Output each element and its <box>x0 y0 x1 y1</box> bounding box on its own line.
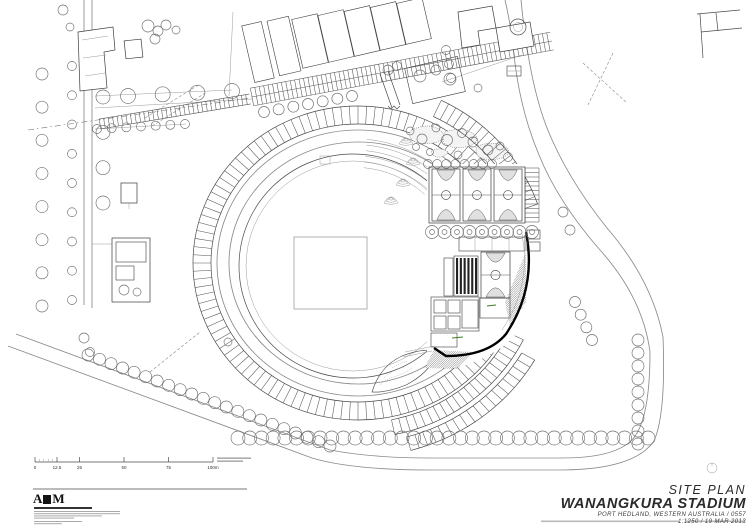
plot-dash-sw <box>150 332 200 372</box>
vacant-plot-cross-2 <box>588 53 613 105</box>
stadium-building <box>403 164 600 369</box>
bottom-right-road-inner <box>16 0 650 458</box>
plot <box>292 14 329 69</box>
project-location: PORT HEDLAND, WESTERN AUSTRALIA / 0557 <box>561 512 746 519</box>
logo-letter-m: M <box>52 491 64 507</box>
boundary-dashline <box>28 98 250 130</box>
building-footprint-nw <box>78 27 115 91</box>
address-microtext <box>34 507 92 509</box>
north-east-buildings <box>458 6 742 76</box>
driveway-dash-1 <box>145 84 200 118</box>
scale-bar-minor-ticks <box>39 459 52 462</box>
plot <box>370 2 405 51</box>
plot <box>267 16 301 76</box>
logo-letter-a: A <box>33 491 42 507</box>
scale-bar: 0 12.5 25 50 75 100m <box>34 457 251 470</box>
plot <box>318 10 354 63</box>
outbuilding <box>121 183 137 203</box>
entry-stairs <box>388 106 400 109</box>
scale-label: 50 <box>121 465 127 470</box>
address-microtext <box>34 515 102 516</box>
project-name: WANANGKURA STADIUM <box>561 497 746 512</box>
civic-building <box>112 238 150 302</box>
north-building-plots <box>242 0 466 104</box>
scale-note-microtext <box>217 458 251 459</box>
site-plan-sheet: 0 12.5 25 50 75 100m SITE PLAN WANANGKUR… <box>0 0 750 530</box>
scale-label: 0 <box>34 465 37 470</box>
logo-mark-icon <box>43 495 51 504</box>
building-footprint-nw2 <box>124 39 143 59</box>
ne-building-2 <box>496 22 534 52</box>
contour-knolls <box>384 138 420 204</box>
bottom-right-road-outer <box>8 0 664 470</box>
address-microtext <box>34 523 62 524</box>
address-microtext <box>34 518 74 519</box>
scale-bar-ticks <box>35 457 213 462</box>
ne-building-1 <box>458 6 496 48</box>
planting-bed <box>432 149 449 157</box>
address-microtext <box>34 513 120 514</box>
indoor-court <box>481 252 510 298</box>
address-microtext <box>34 521 82 522</box>
basketball-courts <box>432 169 522 221</box>
scale-label: 12.5 <box>53 465 62 470</box>
scale-label: 75 <box>166 465 172 470</box>
scale-and-date: 1:1250 / 19 MAR 2013 <box>561 519 746 526</box>
scale-label: 100m <box>207 465 219 470</box>
north-marker <box>707 463 717 473</box>
architect-logo: AM <box>33 491 65 507</box>
plot <box>344 6 380 57</box>
north-entry-path <box>380 71 400 109</box>
entry-path-edges <box>380 71 400 108</box>
road-network <box>8 0 664 470</box>
plot <box>397 0 432 44</box>
scale-note-microtext <box>217 461 243 462</box>
title-block: SITE PLAN WANANGKURA STADIUM PORT HEDLAN… <box>561 484 746 526</box>
site-plan-drawing: 0 12.5 25 50 75 100m <box>0 0 750 530</box>
address-microtext <box>34 511 120 512</box>
far-ne-building <box>697 10 742 58</box>
centre-pitch <box>294 237 367 309</box>
west-precinct-buildings <box>78 27 232 302</box>
scale-label: 25 <box>77 465 83 470</box>
